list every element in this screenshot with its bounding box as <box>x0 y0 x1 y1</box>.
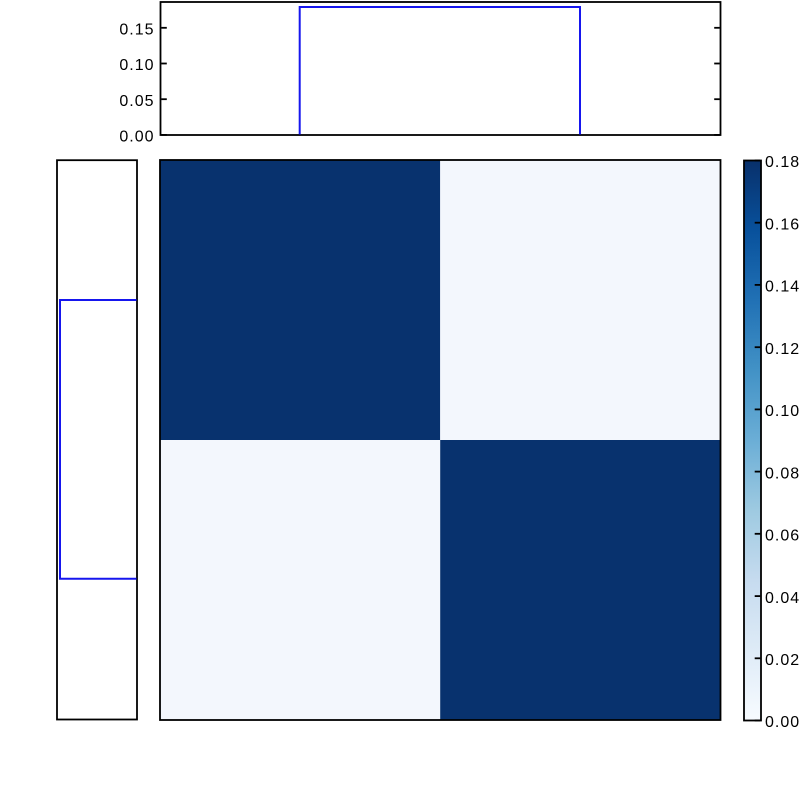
svg-text:0.16: 0.16 <box>765 216 800 233</box>
svg-text:0.05: 0.05 <box>119 93 154 110</box>
svg-text:0.06: 0.06 <box>765 528 800 545</box>
svg-text:0.14: 0.14 <box>765 279 800 296</box>
svg-text:0.04: 0.04 <box>765 590 800 607</box>
svg-text:0.00: 0.00 <box>119 129 154 146</box>
svg-text:0.18: 0.18 <box>765 154 800 171</box>
svg-text:0.10: 0.10 <box>119 57 154 74</box>
svg-text:0.10: 0.10 <box>765 403 800 420</box>
svg-text:0.08: 0.08 <box>765 465 800 482</box>
svg-text:0.15: 0.15 <box>119 22 154 39</box>
svg-text:0.12: 0.12 <box>765 341 800 358</box>
svg-text:0.00: 0.00 <box>765 714 800 731</box>
svg-text:0.02: 0.02 <box>765 652 800 669</box>
